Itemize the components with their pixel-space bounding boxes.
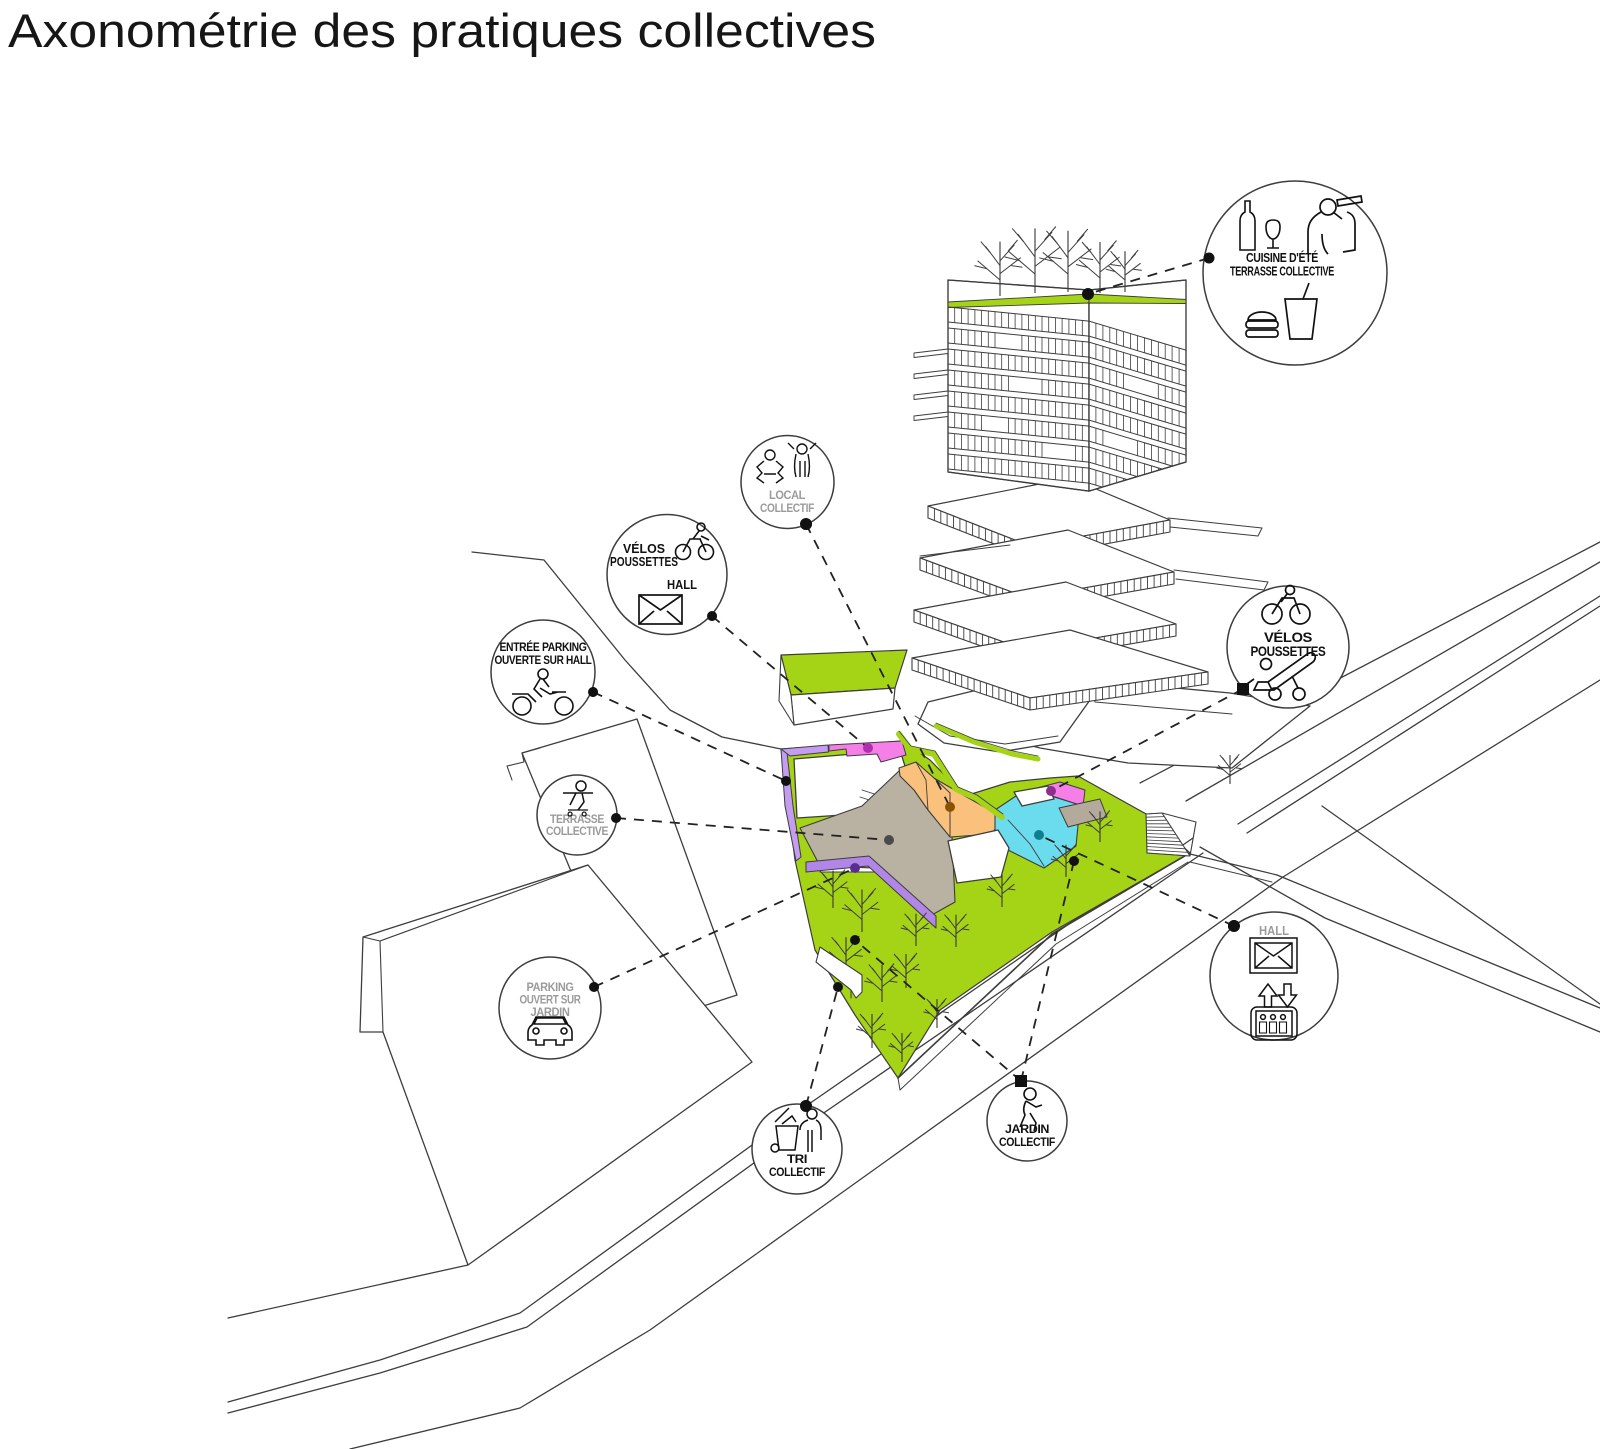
svg-text:TRI: TRI [787, 1152, 807, 1166]
svg-text:HALL: HALL [1259, 923, 1289, 938]
svg-text:POUSSETTES: POUSSETTES [610, 554, 678, 569]
svg-text:VÉLOS: VÉLOS [1264, 630, 1312, 645]
svg-text:COLLECTIF: COLLECTIF [760, 501, 814, 515]
svg-text:COLLECTIVE: COLLECTIVE [546, 826, 609, 838]
svg-text:COLLECTIF: COLLECTIF [999, 1135, 1055, 1149]
svg-text:OUVERTE SUR HALL: OUVERTE SUR HALL [495, 653, 592, 667]
svg-text:POUSSETTES: POUSSETTES [1251, 644, 1326, 659]
svg-text:ENTRÉE PARKING: ENTRÉE PARKING [500, 639, 587, 654]
svg-text:TERRASSE: TERRASSE [550, 814, 605, 826]
svg-text:JARDIN: JARDIN [1005, 1122, 1049, 1136]
svg-text:OUVERT SUR: OUVERT SUR [520, 995, 582, 1007]
svg-text:PARKING: PARKING [527, 982, 574, 994]
svg-text:HALL: HALL [667, 577, 697, 592]
svg-text:TERRASSE COLLECTIVE: TERRASSE COLLECTIVE [1230, 265, 1334, 279]
svg-text:COLLECTIF: COLLECTIF [769, 1165, 825, 1179]
svg-text:LOCAL: LOCAL [769, 488, 805, 502]
svg-text:Axonométrie des pratiques coll: Axonométrie des pratiques collectives [8, 4, 876, 57]
